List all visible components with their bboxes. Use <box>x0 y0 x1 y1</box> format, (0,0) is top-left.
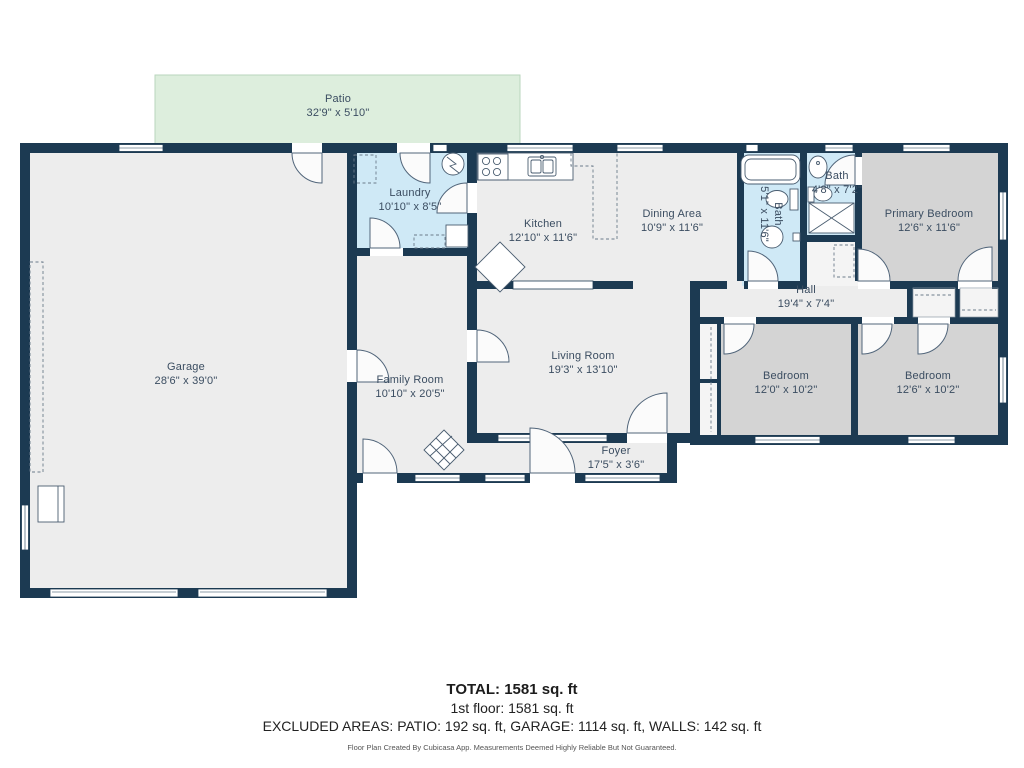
half-wall <box>513 281 593 289</box>
room-label-living: Living Room19'3" x 13'10" <box>503 349 663 377</box>
excluded-areas-text: EXCLUDED AREAS: PATIO: 192 sq. ft, GARAG… <box>0 717 1024 735</box>
total-area-text: TOTAL: 1581 sq. ft <box>0 681 1024 699</box>
room-label-bath2: Bath4'8" x 7'2" <box>757 169 917 197</box>
room-label-bedroom1: Bedroom12'0" x 10'2" <box>706 369 866 397</box>
room-label-foyer: Foyer17'5" x 3'6" <box>536 444 696 472</box>
garage-door <box>198 589 327 597</box>
water-heater-icon <box>38 486 64 522</box>
room-label-family: Family Room10'10" x 20'5" <box>330 373 490 401</box>
floor-plan-page: Patio32'9" x 5'10" Garage28'6" x 39'0" L… <box>0 0 1024 768</box>
kitchen-counter <box>477 153 573 180</box>
room-label-patio: Patio32'9" x 5'10" <box>258 92 418 120</box>
shower-icon <box>809 203 854 233</box>
garage-door <box>50 589 178 597</box>
room-label-hall: Hall19'4" x 7'4" <box>726 283 886 311</box>
water-heater-icon <box>442 153 464 175</box>
room-label-laundry: Laundry10'10" x 8'5" <box>330 186 490 214</box>
room-label-garage: Garage28'6" x 39'0" <box>106 360 266 388</box>
room-label-bedroom2: Bedroom12'6" x 10'2" <box>848 369 1008 397</box>
room-label-bath1: Bath5'1" x 11'6" <box>757 134 785 294</box>
area-summary: TOTAL: 1581 sq. ft 1st floor: 1581 sq. f… <box>0 681 1024 753</box>
room-label-dining: Dining Area10'9" x 11'6" <box>592 207 752 235</box>
disclaimer-text: Floor Plan Created By Cubicasa App. Meas… <box>0 743 1024 753</box>
first-floor-text: 1st floor: 1581 sq. ft <box>0 699 1024 717</box>
room-label-primary: Primary Bedroom12'6" x 11'6" <box>849 207 1009 235</box>
